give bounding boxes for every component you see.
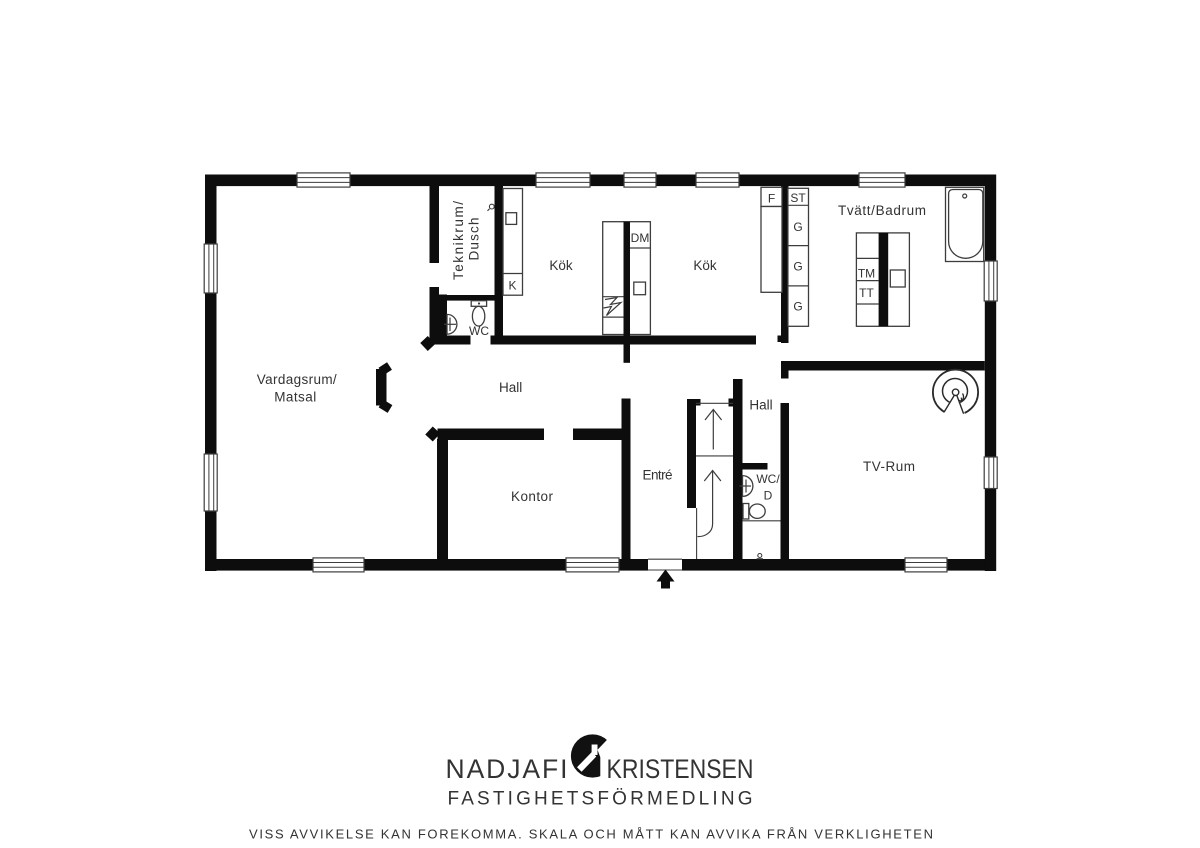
svg-text:Tvätt/Badrum: Tvätt/Badrum xyxy=(838,203,926,218)
svg-text:Hall: Hall xyxy=(499,380,522,395)
svg-text:Entré: Entré xyxy=(643,468,673,483)
svg-text:Kök: Kök xyxy=(693,258,717,273)
svg-text:Kök: Kök xyxy=(549,258,573,273)
svg-text:G: G xyxy=(793,220,802,234)
svg-text:K: K xyxy=(508,279,516,293)
svg-text:Matsal: Matsal xyxy=(274,390,316,405)
svg-text:G: G xyxy=(793,260,802,274)
svg-text:WC: WC xyxy=(469,324,489,338)
svg-text:VISS AVVIKELSE KAN FOREKOMMA.: VISS AVVIKELSE KAN FOREKOMMA. SKALA OCH … xyxy=(249,827,933,842)
svg-text:Hall: Hall xyxy=(749,398,772,413)
svg-text:TT: TT xyxy=(859,286,874,300)
svg-text:FASTIGHETSFÖRMEDLING: FASTIGHETSFÖRMEDLING xyxy=(448,789,753,810)
svg-text:Teknikrum/: Teknikrum/ xyxy=(451,201,466,280)
svg-text:G: G xyxy=(793,300,802,314)
svg-text:TM: TM xyxy=(858,267,875,281)
svg-text:WC/: WC/ xyxy=(756,472,780,486)
svg-text:Vardagsrum/: Vardagsrum/ xyxy=(257,372,337,387)
svg-text:TV-Rum: TV-Rum xyxy=(863,459,915,474)
svg-text:DM: DM xyxy=(631,231,650,245)
svg-text:NADJAFI: NADJAFI xyxy=(446,754,568,784)
svg-text:F: F xyxy=(768,192,775,206)
svg-text:D: D xyxy=(764,489,773,503)
svg-text:Dusch: Dusch xyxy=(467,218,482,261)
svg-text:Kontor: Kontor xyxy=(511,489,554,504)
svg-text:ST: ST xyxy=(790,191,806,205)
svg-text:KRISTENSEN: KRISTENSEN xyxy=(607,754,754,784)
